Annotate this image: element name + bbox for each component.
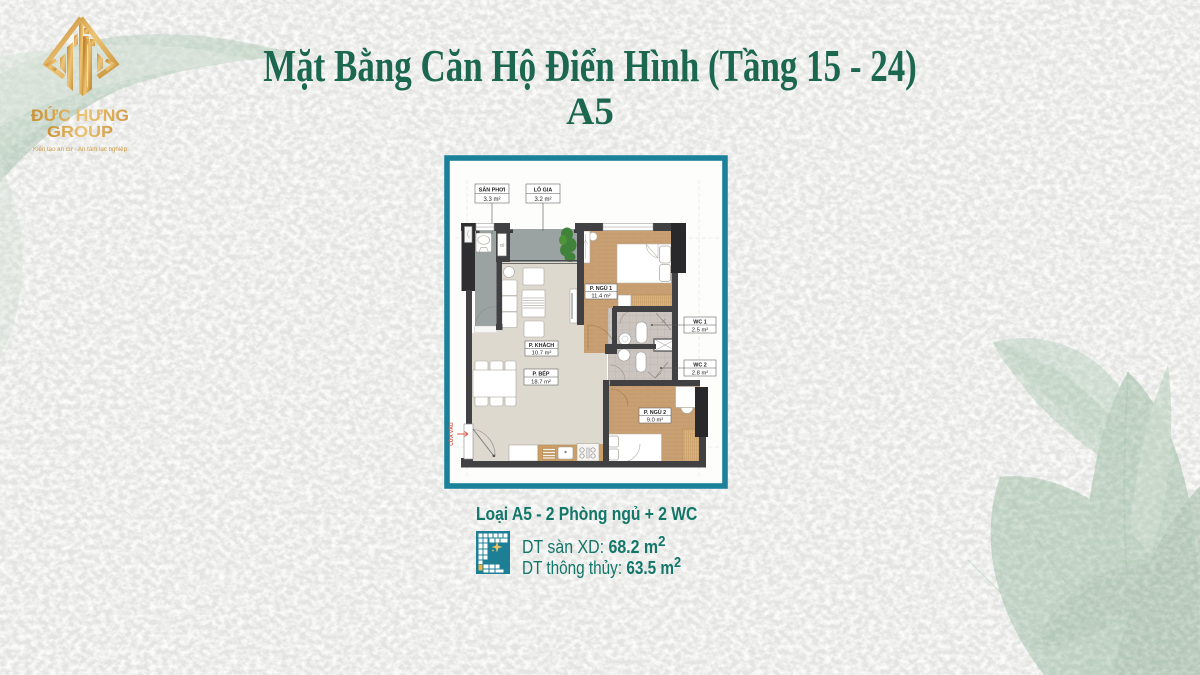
svg-text:9.0 m²: 9.0 m² bbox=[647, 418, 663, 424]
svg-text:P. NGỦ 1: P. NGỦ 1 bbox=[590, 285, 612, 292]
svg-text:Kiến tạo an cư - An tâm lạc ng: Kiến tạo an cư - An tâm lạc nghiệp bbox=[33, 144, 127, 153]
svg-text:11.4 m²: 11.4 m² bbox=[591, 294, 610, 300]
svg-text:WC 2: WC 2 bbox=[693, 363, 706, 369]
svg-text:3.2 m²: 3.2 m² bbox=[534, 197, 551, 203]
svg-text:18.7 m²: 18.7 m² bbox=[531, 379, 551, 385]
svg-text:CỦ: CỦ bbox=[500, 243, 505, 248]
svg-text:P. BẾP: P. BẾP bbox=[533, 371, 550, 378]
svg-text:2.8 m²: 2.8 m² bbox=[692, 370, 708, 376]
svg-text:3.3 m²: 3.3 m² bbox=[483, 197, 500, 203]
svg-text:LÔ GIA: LÔ GIA bbox=[534, 186, 553, 194]
svg-text:P. KHÁCH: P. KHÁCH bbox=[529, 342, 554, 349]
svg-text:CỬA VÀO: CỬA VÀO bbox=[448, 422, 455, 446]
svg-text:WC 1: WC 1 bbox=[693, 320, 706, 326]
svg-text:SÂN PHƠI: SÂN PHƠI bbox=[479, 187, 506, 194]
svg-text:10.7 m²: 10.7 m² bbox=[532, 351, 552, 357]
svg-text:2.5 m²: 2.5 m² bbox=[692, 327, 708, 333]
svg-text:P. NGỦ 2: P. NGỦ 2 bbox=[644, 409, 666, 416]
